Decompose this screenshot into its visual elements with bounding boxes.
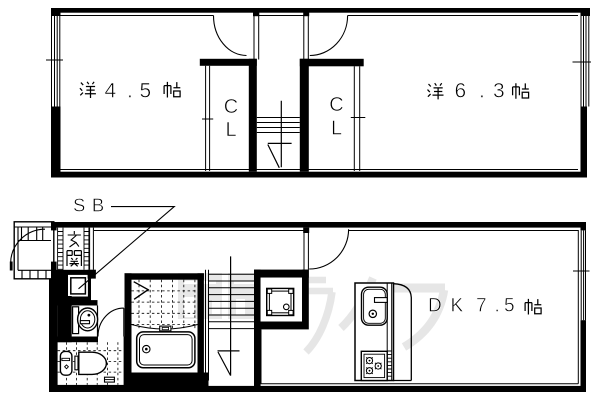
svg-text:4.5: 4.5 — [105, 80, 152, 103]
svg-text:6.3: 6.3 — [455, 80, 505, 103]
svg-text:L: L — [225, 119, 236, 141]
svg-text:L: L — [331, 118, 342, 140]
svg-text:SB: SB — [73, 195, 111, 216]
svg-text:C: C — [329, 94, 343, 116]
svg-text:C: C — [224, 96, 238, 118]
